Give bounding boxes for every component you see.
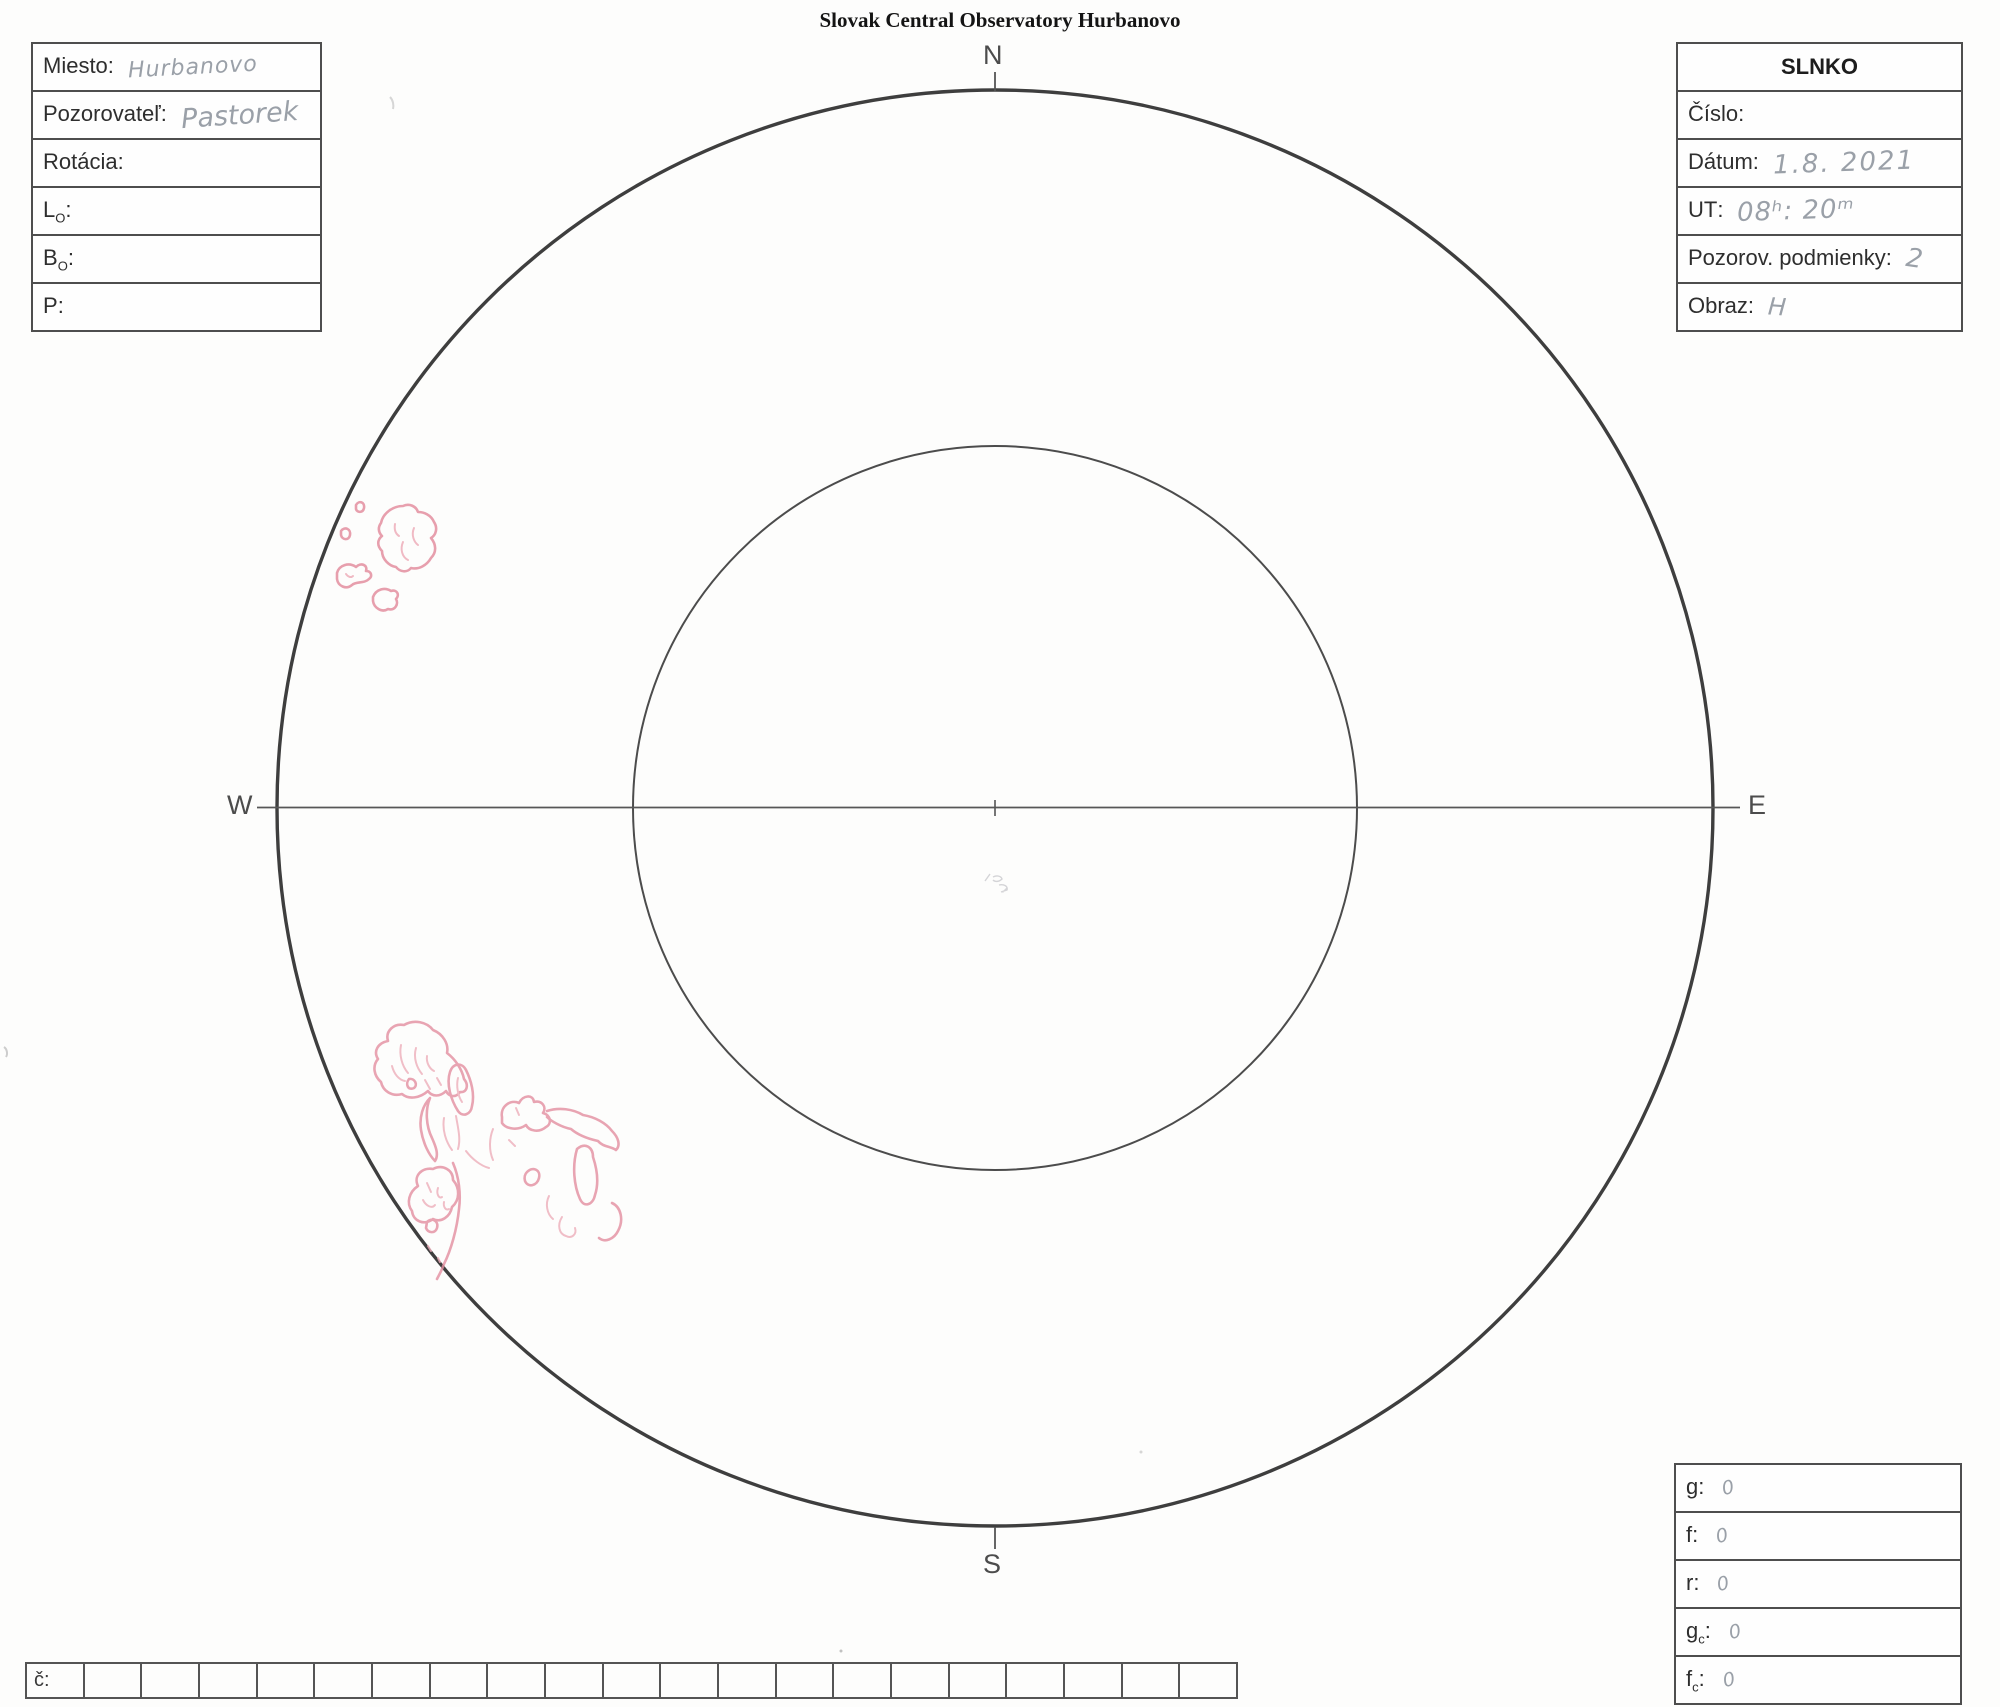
counts-panel: g: 0 f: 0 r: 0 gc: 0 fc: 0	[1674, 1463, 1962, 1705]
strip-label: č:	[34, 1669, 50, 1692]
strip-cell	[1121, 1662, 1181, 1699]
fc-value-handwritten: 0	[1721, 1668, 1737, 1692]
sunspot-detail	[547, 1196, 576, 1237]
field-label: Rotácia:	[43, 149, 124, 176]
strip-cell	[775, 1662, 835, 1699]
field-b0: BO:	[31, 234, 322, 284]
sunspot-detail	[423, 1183, 449, 1210]
sunspot-outline	[374, 1022, 466, 1098]
field-podmienky: Pozorov. podmienky: 2	[1676, 234, 1963, 284]
ut-value-handwritten: 08ʰ: 20ᵐ	[1737, 194, 1856, 228]
field-f: f: 0	[1674, 1511, 1962, 1561]
field-p: P:	[31, 282, 322, 332]
field-fc: fc: 0	[1674, 1655, 1962, 1705]
field-label: gc:	[1686, 1618, 1711, 1645]
field-label: LO:	[43, 197, 72, 224]
field-r: r: 0	[1674, 1559, 1962, 1609]
field-obraz: Obraz: H	[1676, 282, 1963, 332]
field-g: g: 0	[1674, 1463, 1962, 1513]
sunspot-outline	[373, 589, 398, 610]
r-value-handwritten: 0	[1715, 1572, 1731, 1596]
strip-cell	[313, 1662, 373, 1699]
page-title: Slovak Central Observatory Hurbanovo	[819, 8, 1180, 33]
sunspot-outline	[426, 1220, 437, 1232]
strip-cell	[948, 1662, 1008, 1699]
sunspot-outline	[525, 1169, 540, 1185]
sunspot-outline	[337, 564, 371, 587]
miesto-value-handwritten: Hurbanovo	[127, 51, 258, 83]
field-ut: UT: 08ʰ: 20ᵐ	[1676, 186, 1963, 236]
field-pozorovatel: Pozorovateľ: Pastorek	[31, 90, 322, 140]
compass-west-label: W	[227, 792, 252, 819]
sunspot-detail	[457, 1078, 462, 1102]
field-label: Dátum:	[1688, 149, 1759, 176]
field-label: Obraz:	[1688, 293, 1754, 320]
slnko-panel: SLNKO Číslo: Dátum: 1.8. 2021 UT: 08ʰ: 2…	[1676, 42, 1963, 332]
sunspot-detail	[407, 1079, 416, 1089]
number-strip: č:	[25, 1662, 1238, 1699]
field-label: BO:	[43, 245, 74, 272]
podmienky-value-handwritten: 2	[1904, 243, 1925, 275]
observation-form: Slovak Central Observatory Hurbanovo N S…	[0, 0, 2000, 1707]
strip-label-cell: č:	[25, 1662, 85, 1699]
field-label: g:	[1686, 1474, 1704, 1501]
strip-cell	[486, 1662, 546, 1699]
field-label: f:	[1686, 1522, 1698, 1549]
strip-cell	[371, 1662, 431, 1699]
sunspot-outline	[599, 1203, 621, 1240]
sunspot-group-northwest	[337, 502, 436, 610]
strip-cell	[659, 1662, 719, 1699]
sunspot-group-southwest	[374, 1022, 621, 1279]
strip-cell	[198, 1662, 258, 1699]
field-datum: Dátum: 1.8. 2021	[1676, 138, 1963, 188]
field-label: P:	[43, 293, 64, 320]
sunspot-outline	[420, 1098, 436, 1161]
sunspot-detail	[466, 1129, 515, 1168]
strip-cell	[140, 1662, 200, 1699]
pencil-scribble	[985, 874, 1007, 892]
strip-cell	[717, 1662, 777, 1699]
strip-cell	[1063, 1662, 1123, 1699]
gc-value-handwritten: 0	[1727, 1620, 1743, 1644]
strip-cell	[602, 1662, 662, 1699]
field-label: Číslo:	[1688, 101, 1744, 128]
sunspot-detail	[395, 524, 418, 560]
strip-cell	[832, 1662, 892, 1699]
field-miesto: Miesto: Hurbanovo	[31, 42, 322, 92]
slnko-header: SLNKO	[1676, 42, 1963, 92]
field-l0: LO:	[31, 186, 322, 236]
field-label: Pozorov. podmienky:	[1688, 245, 1892, 272]
field-label: r:	[1686, 1570, 1699, 1597]
strip-cell	[890, 1662, 950, 1699]
sunspot-outline	[341, 528, 350, 539]
sunspot-outline	[409, 1167, 458, 1222]
strip-cell	[1005, 1662, 1065, 1699]
field-cislo: Číslo:	[1676, 90, 1963, 140]
g-value-handwritten: 0	[1720, 1476, 1736, 1500]
field-label: UT:	[1688, 197, 1723, 224]
compass-north-label: N	[983, 42, 1003, 69]
strip-cell	[544, 1662, 604, 1699]
strip-cell	[429, 1662, 489, 1699]
field-label: Miesto:	[43, 53, 114, 80]
observer-panel: Miesto: Hurbanovo Pozorovateľ: Pastorek …	[31, 42, 322, 332]
field-rotacia: Rotácia:	[31, 138, 322, 188]
field-label: Pozorovateľ:	[43, 101, 167, 128]
strip-cell	[83, 1662, 143, 1699]
datum-value-handwritten: 1.8. 2021	[1772, 146, 1915, 181]
sunspot-outline	[574, 1146, 597, 1205]
obraz-value-handwritten: H	[1767, 292, 1787, 321]
f-value-handwritten: 0	[1714, 1524, 1730, 1548]
compass-south-label: S	[983, 1551, 1001, 1578]
sunspot-outline	[547, 1109, 619, 1150]
strip-cell	[1178, 1662, 1238, 1699]
sunspot-outline	[378, 505, 436, 571]
field-gc: gc: 0	[1674, 1607, 1962, 1657]
sunspot-outline	[502, 1096, 550, 1130]
compass-east-label: E	[1748, 792, 1766, 819]
sunspot-detail	[443, 1116, 459, 1150]
strip-cell	[256, 1662, 316, 1699]
sunspot-detail	[346, 574, 353, 577]
field-label: fc:	[1686, 1666, 1705, 1693]
sunspot-detail	[516, 1108, 519, 1115]
sunspot-outline	[356, 502, 364, 512]
pozorovatel-value-handwritten: Pastorek	[180, 95, 299, 134]
